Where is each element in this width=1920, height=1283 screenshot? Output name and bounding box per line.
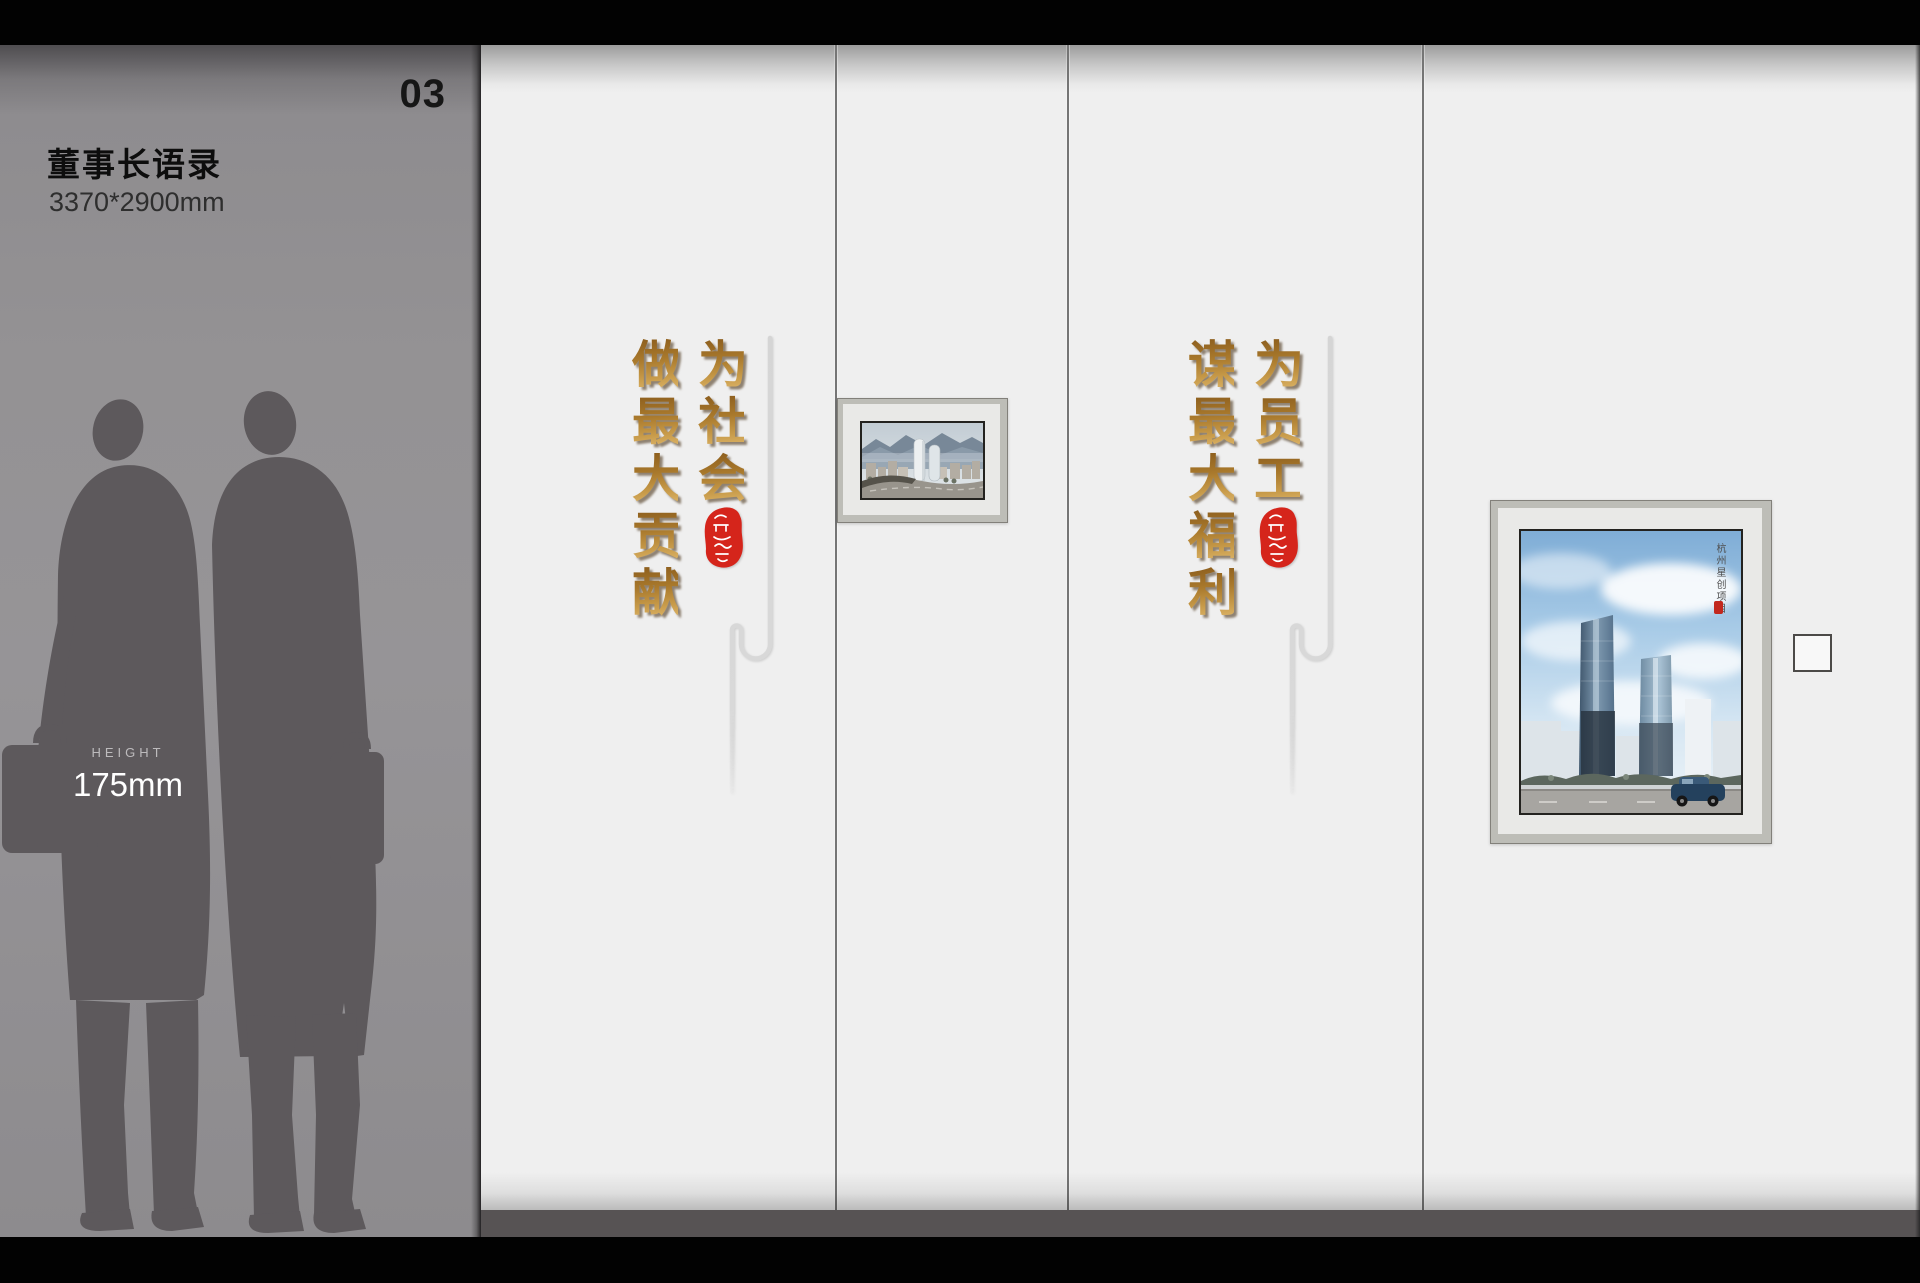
businessmen-silhouette-icon bbox=[0, 375, 481, 1237]
skyline-poster-photo bbox=[1519, 529, 1743, 815]
wall-right-edge bbox=[1915, 45, 1920, 1237]
height-value: 175mm bbox=[53, 766, 203, 804]
figure-height-group: HEIGHT 175mm bbox=[53, 745, 203, 804]
panel-divider bbox=[835, 45, 837, 1237]
page-index-number: 03 bbox=[400, 72, 447, 117]
spec-sidebar: HEIGHT 175mm 03 董事长语录 3370*2900mm bbox=[0, 45, 481, 1237]
floor-shadow bbox=[481, 1172, 1920, 1210]
size-spec: 3370*2900mm bbox=[49, 187, 225, 218]
quote-staff-primary: 为员工 bbox=[1250, 338, 1300, 509]
floor-strip bbox=[481, 1210, 1920, 1237]
height-label: HEIGHT bbox=[53, 745, 203, 760]
mini-seal-icon bbox=[1714, 601, 1723, 614]
bottom-black-bar bbox=[0, 1237, 1920, 1283]
wall-square-marker bbox=[1793, 634, 1832, 672]
panel-divider bbox=[1067, 45, 1069, 1237]
panel-divider bbox=[1422, 45, 1424, 1237]
board-title: 董事长语录 bbox=[47, 138, 222, 186]
sidebar-edge-shadow bbox=[471, 45, 481, 1237]
picture-frame-large bbox=[1490, 500, 1772, 844]
quote-society-secondary: 做最大贡献 bbox=[628, 338, 678, 623]
top-black-bar bbox=[0, 0, 1920, 45]
picture-frame-small bbox=[837, 398, 1008, 523]
quote-society-primary: 为社会 bbox=[694, 338, 744, 509]
ceiling-shadow bbox=[481, 45, 1920, 93]
cityscape-photo bbox=[860, 421, 985, 500]
design-board: 为社会 做最大贡献 为员工 谋最大福利 bbox=[0, 0, 1920, 1283]
seal-stamp-icon bbox=[702, 506, 745, 569]
seal-stamp-icon bbox=[1257, 506, 1300, 569]
quote-staff-secondary: 谋最大福利 bbox=[1184, 338, 1234, 623]
